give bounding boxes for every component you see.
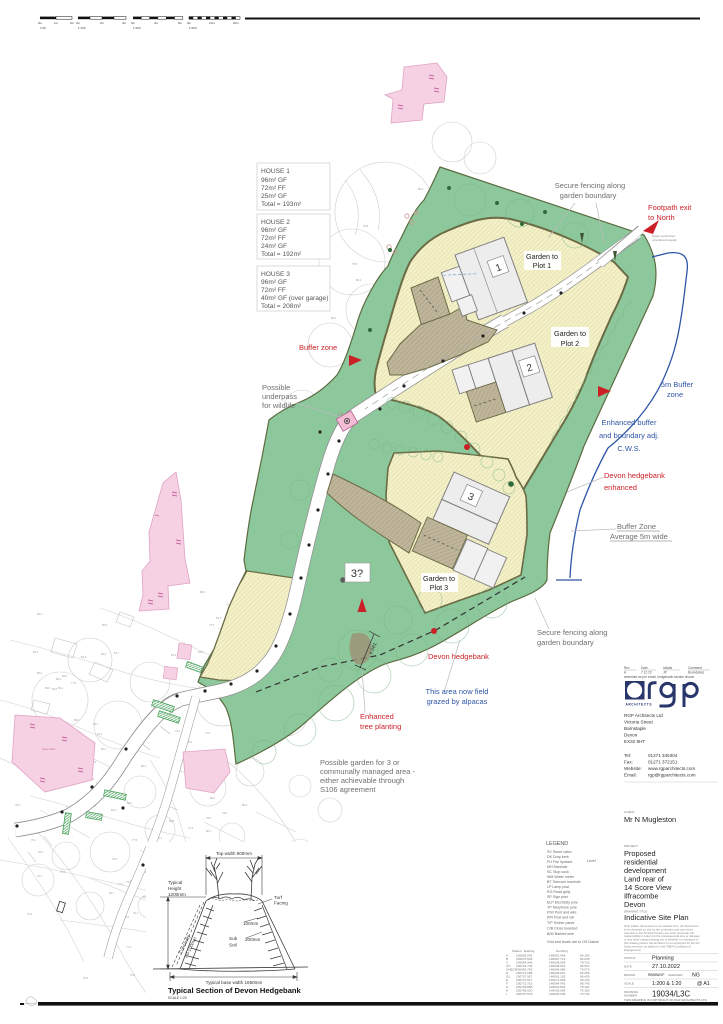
svg-text:72m² FF: 72m² FF <box>261 185 286 192</box>
svg-text:24m² GF: 24m² GF <box>261 243 287 250</box>
svg-text:ARCHITECTS: ARCHITECTS <box>626 703 653 707</box>
svg-text:Easting: Easting <box>524 949 535 953</box>
svg-text:85.2: 85.2 <box>127 801 133 805</box>
svg-text:SP Sign post: SP Sign post <box>547 895 568 899</box>
svg-text:Devon: Devon <box>624 733 638 738</box>
svg-text:S106 agreement: S106 agreement <box>320 785 376 794</box>
svg-text:72m² FF: 72m² FF <box>261 287 286 294</box>
svg-text:NUMBER: NUMBER <box>624 993 638 997</box>
svg-text:NG: NG <box>692 973 700 979</box>
svg-text:LEGEND: LEGEND <box>546 841 568 847</box>
svg-text:77.5: 77.5 <box>205 731 211 735</box>
svg-text:DRAWN: DRAWN <box>624 973 635 977</box>
svg-text:77.5: 77.5 <box>209 623 215 627</box>
svg-text:81.3: 81.3 <box>97 732 103 736</box>
svg-text:Typical base width 1850mm: Typical base width 1850mm <box>206 980 263 985</box>
svg-text:Plot 3: Plot 3 <box>430 583 448 592</box>
svg-text:Boundaries: Boundaries <box>688 671 705 675</box>
svg-text:25m² GF: 25m² GF <box>261 193 287 200</box>
svg-text:LP Lamp post: LP Lamp post <box>547 885 569 889</box>
svg-text:T/P Timber panel: T/P Timber panel <box>547 921 574 925</box>
svg-text:Turf: Turf <box>274 895 283 900</box>
svg-text:Enhanced: Enhanced <box>360 712 394 721</box>
svg-text:Rev: Rev <box>624 666 630 670</box>
svg-text:to North: to North <box>648 213 675 222</box>
svg-text:79.1: 79.1 <box>175 729 181 733</box>
svg-text:Planning: Planning <box>652 956 674 962</box>
svg-text:Station: Station <box>512 949 522 953</box>
svg-text:Enhanced buffer: Enhanced buffer <box>602 418 657 427</box>
svg-text:Website:: Website: <box>624 766 642 771</box>
svg-text:SC Stop cock: SC Stop cock <box>547 870 569 874</box>
svg-text:82.6: 82.6 <box>62 674 68 678</box>
svg-text:SCALE: SCALE <box>624 982 634 986</box>
svg-text:72m² FF: 72m² FF <box>261 235 286 242</box>
svg-text:Plot 2: Plot 2 <box>561 339 579 348</box>
svg-text:27.10.2022: 27.10.2022 <box>652 964 680 970</box>
svg-text:80.1: 80.1 <box>210 796 216 800</box>
svg-text:P/R Post and rail: P/R Post and rail <box>547 916 574 920</box>
svg-text:Possible garden for 3 or: Possible garden for 3 or <box>320 758 400 767</box>
svg-text:RG Road gully: RG Road gully <box>547 890 571 894</box>
svg-text:79.1: 79.1 <box>37 874 43 878</box>
svg-text:Victoria Street: Victoria Street <box>624 720 653 725</box>
svg-text:CHECKED: CHECKED <box>668 973 684 977</box>
svg-text:78.2: 78.2 <box>15 803 21 807</box>
svg-text:80.9: 80.9 <box>74 718 80 722</box>
svg-text:ELP Electricity pole: ELP Electricity pole <box>547 901 578 905</box>
svg-text:PROJECT: PROJECT <box>624 844 638 848</box>
svg-text:01271 372151: 01271 372151 <box>648 760 678 765</box>
svg-text:200mm: 200mm <box>245 937 260 942</box>
svg-text:either achievable through: either achievable through <box>320 776 404 785</box>
svg-text:80.2: 80.2 <box>56 677 62 681</box>
svg-text:Height: Height <box>168 886 182 891</box>
svg-text:3?: 3? <box>351 568 363 580</box>
svg-text:Possible: Possible <box>262 383 290 392</box>
svg-text:garden boundary: garden boundary <box>560 191 617 200</box>
svg-text:82.4: 82.4 <box>81 655 87 659</box>
svg-text:1200mm: 1200mm <box>168 892 186 897</box>
svg-text:79.8: 79.8 <box>130 973 136 977</box>
svg-text:Devon hedgebank: Devon hedgebank <box>604 471 665 480</box>
svg-text:SV Stone valve: SV Stone valve <box>547 850 572 854</box>
svg-text:1m: 1m <box>54 21 59 25</box>
svg-text:Devon hedgebank: Devon hedgebank <box>428 652 489 661</box>
svg-text:HOUSE 3: HOUSE 3 <box>261 271 290 278</box>
svg-text:garden boundary: garden boundary <box>537 638 594 647</box>
svg-text:82.4: 82.4 <box>111 808 117 812</box>
svg-text:80.2: 80.2 <box>418 187 424 191</box>
svg-text:for wildlife: for wildlife <box>262 401 295 410</box>
svg-text:JP: JP <box>663 671 667 675</box>
svg-text:79.6: 79.6 <box>222 811 228 815</box>
svg-text:Fax:: Fax: <box>624 760 633 765</box>
svg-text:Initials: Initials <box>663 666 672 670</box>
svg-text:@ A1: @ A1 <box>697 981 710 987</box>
svg-text:underpass: underpass <box>262 392 297 401</box>
svg-text:THIS DRAWING IS COPYRIGHT OF R: THIS DRAWING IS COPYRIGHT OF RGP ARCHITE… <box>624 998 708 1002</box>
svg-text:4m: 4m <box>122 21 127 25</box>
svg-text:77.4: 77.4 <box>118 882 124 886</box>
svg-text:76.8: 76.8 <box>363 224 369 228</box>
svg-text:01271 345304: 01271 345304 <box>648 753 678 758</box>
svg-text:P/W Post and wire: P/W Post and wire <box>547 911 577 915</box>
svg-text:EX32 9HT: EX32 9HT <box>624 739 645 744</box>
svg-text:Footpath exit: Footpath exit <box>648 203 692 212</box>
svg-text:Date: Date <box>641 666 648 670</box>
svg-text:20m: 20m <box>233 21 239 25</box>
svg-text:77.5: 77.5 <box>71 681 77 685</box>
svg-text:BT Telecom manhole: BT Telecom manhole <box>547 880 581 884</box>
svg-text:zone: zone <box>667 390 683 399</box>
svg-text:2m: 2m <box>100 21 105 25</box>
svg-text:81.3: 81.3 <box>171 653 177 657</box>
svg-text:77.4: 77.4 <box>188 826 194 830</box>
svg-text:grazed by alpacas: grazed by alpacas <box>427 697 488 706</box>
svg-text:unsurfaced footpath: unsurfaced footpath <box>652 238 677 242</box>
svg-text:amended as per email, hedgeban: amended as per email, hedgebank section … <box>624 675 695 679</box>
svg-text:Mr N Mugleston: Mr N Mugleston <box>624 815 676 824</box>
svg-text:83.1: 83.1 <box>58 686 64 690</box>
svg-text:DATE: DATE <box>624 965 632 969</box>
svg-text:Garden to: Garden to <box>423 574 455 583</box>
svg-text:82.6: 82.6 <box>45 686 51 690</box>
svg-text:230757.578: 230757.578 <box>516 992 533 996</box>
svg-text:FH Fire hydrant: FH Fire hydrant <box>547 860 572 864</box>
svg-text:79.1: 79.1 <box>27 912 33 916</box>
svg-text:1:500: 1:500 <box>189 26 197 30</box>
svg-text:83.2: 83.2 <box>37 612 43 616</box>
svg-text:8m: 8m <box>178 21 183 25</box>
svg-text:7.12.20: 7.12.20 <box>641 671 652 675</box>
svg-text:Engagement'.: Engagement'. <box>624 948 642 952</box>
svg-text:Secure fencing along: Secure fencing along <box>555 181 625 190</box>
svg-text:0m: 0m <box>131 21 136 25</box>
svg-text:Buffer Zone: Buffer Zone <box>617 522 656 531</box>
svg-text:Score View: Score View <box>42 747 55 751</box>
svg-text:96m² GF: 96m² GF <box>261 177 287 184</box>
svg-text:75.744: 75.744 <box>580 992 590 996</box>
svg-text:Average 5m wide: Average 5m wide <box>610 532 668 541</box>
svg-text:82.6: 82.6 <box>200 590 206 594</box>
svg-text:1:200 & 1:20: 1:200 & 1:20 <box>652 981 682 987</box>
svg-text:MH Manhole: MH Manhole <box>547 865 567 869</box>
svg-text:96m² GF: 96m² GF <box>261 279 287 286</box>
svg-text:79.1: 79.1 <box>31 838 37 842</box>
svg-text:75.6: 75.6 <box>112 857 118 861</box>
svg-text:85.2: 85.2 <box>37 671 43 675</box>
svg-text:STATUS: STATUS <box>624 956 635 960</box>
svg-text:81.7: 81.7 <box>109 891 115 895</box>
svg-text:80.2: 80.2 <box>356 278 362 282</box>
svg-text:81.7: 81.7 <box>216 616 222 620</box>
svg-text:75.6: 75.6 <box>60 870 66 874</box>
svg-text:Total = 193m²: Total = 193m² <box>261 201 302 208</box>
svg-text:Indicative Site Plan: Indicative Site Plan <box>624 913 689 922</box>
svg-text:Level: Level <box>587 859 596 863</box>
svg-text:Email:: Email: <box>624 773 637 778</box>
svg-text:I: I <box>506 992 507 996</box>
svg-text:83.8: 83.8 <box>198 650 204 654</box>
svg-text:www.rgparchitects.com: www.rgparchitects.com <box>648 766 695 771</box>
svg-text:80.1: 80.1 <box>206 829 212 833</box>
svg-text:Garden to: Garden to <box>554 329 586 338</box>
svg-text:enhanced: enhanced <box>604 483 637 492</box>
svg-text:Total = 208m²: Total = 208m² <box>261 303 302 310</box>
svg-text:4m: 4m <box>154 21 159 25</box>
svg-text:1:100: 1:100 <box>78 26 86 30</box>
svg-text:RGP Architects Ltd: RGP Architects Ltd <box>624 713 663 718</box>
svg-text:Devon: Devon <box>624 900 645 909</box>
svg-text:40m² GF (over garage): 40m² GF (over garage) <box>261 295 328 302</box>
svg-text:Grid and levels are to OS Datu: Grid and levels are to OS Datum <box>547 940 599 944</box>
svg-text:83.8: 83.8 <box>169 819 175 823</box>
svg-text:77.5: 77.5 <box>132 838 138 842</box>
svg-text:Barnstaple: Barnstaple <box>624 726 646 731</box>
svg-text:80.2: 80.2 <box>331 316 337 320</box>
svg-text:Comment: Comment <box>688 666 702 670</box>
svg-text:SCALE 1:20: SCALE 1:20 <box>168 996 187 1000</box>
svg-text:78.2: 78.2 <box>206 816 212 820</box>
svg-text:B/W Barbed wire: B/W Barbed wire <box>547 932 574 936</box>
svg-text:Top width 900mm: Top width 900mm <box>216 851 252 856</box>
svg-text:100mm: 100mm <box>243 921 258 926</box>
svg-text:83.2: 83.2 <box>101 652 107 656</box>
svg-text:96m² GF: 96m² GF <box>261 227 287 234</box>
svg-text:Total = 192m²: Total = 192m² <box>261 251 302 258</box>
svg-text:rgp@rgparchitects.com: rgp@rgparchitects.com <box>648 773 696 778</box>
svg-text:HOUSE 2: HOUSE 2 <box>261 219 290 226</box>
svg-text:TP Telephone pole: TP Telephone pole <box>547 906 577 910</box>
svg-text:146044.058: 146044.058 <box>549 992 566 996</box>
svg-text:and boundary adj.: and boundary adj. <box>599 431 659 440</box>
svg-text:77.4: 77.4 <box>126 945 132 949</box>
svg-text:1:50: 1:50 <box>40 26 46 30</box>
svg-text:Soil: Soil <box>229 943 237 948</box>
svg-text:80.1: 80.1 <box>141 764 147 768</box>
svg-text:83.1: 83.1 <box>93 722 99 726</box>
svg-text:0m: 0m <box>187 21 192 25</box>
svg-text:Typical Section of Devon Hedge: Typical Section of Devon Hedgebank <box>168 986 302 995</box>
svg-text:5m Buffer: 5m Buffer <box>661 380 694 389</box>
svg-text:Northing: Northing <box>556 949 568 953</box>
svg-text:tree planting: tree planting <box>360 722 401 731</box>
svg-text:Tel:: Tel: <box>624 753 631 758</box>
svg-text:RB/MW/JF: RB/MW/JF <box>648 973 664 977</box>
svg-text:1:200: 1:200 <box>133 26 141 30</box>
svg-text:Facing: Facing <box>274 901 288 906</box>
svg-text:79.1: 79.1 <box>133 911 139 915</box>
svg-text:Buffer zone: Buffer zone <box>299 343 337 352</box>
svg-text:83.1: 83.1 <box>38 850 44 854</box>
svg-text:82.6: 82.6 <box>52 687 58 691</box>
svg-text:80.2: 80.2 <box>242 803 248 807</box>
svg-text:This area now field: This area now field <box>426 687 489 696</box>
svg-text:78.2: 78.2 <box>83 976 89 980</box>
svg-text:2m: 2m <box>70 21 75 25</box>
svg-text:WM Water meter: WM Water meter <box>547 875 575 879</box>
svg-text:0m: 0m <box>76 21 81 25</box>
svg-text:Sub: Sub <box>229 936 238 941</box>
svg-text:C/B Close boarded: C/B Close boarded <box>547 927 577 931</box>
svg-text:83.2: 83.2 <box>33 650 39 654</box>
svg-text:DK Drop kerb: DK Drop kerb <box>547 855 569 859</box>
svg-text:CLIENT: CLIENT <box>624 810 635 814</box>
svg-text:10m: 10m <box>209 21 215 25</box>
svg-text:Garden to: Garden to <box>526 252 558 261</box>
svg-text:Typical: Typical <box>168 880 182 885</box>
svg-text:Plot 1: Plot 1 <box>533 261 551 270</box>
svg-text:0m: 0m <box>38 21 43 25</box>
svg-text:C.W.S.: C.W.S. <box>617 444 640 453</box>
svg-text:80.9: 80.9 <box>102 623 108 627</box>
svg-text:81.7: 81.7 <box>114 651 120 655</box>
svg-text:Secure fencing along: Secure fencing along <box>537 628 607 637</box>
svg-text:communally managed area -: communally managed area - <box>320 767 416 776</box>
svg-text:82.4: 82.4 <box>101 747 107 751</box>
svg-text:HOUSE 1: HOUSE 1 <box>261 168 290 175</box>
svg-text:78.9: 78.9 <box>352 262 358 266</box>
